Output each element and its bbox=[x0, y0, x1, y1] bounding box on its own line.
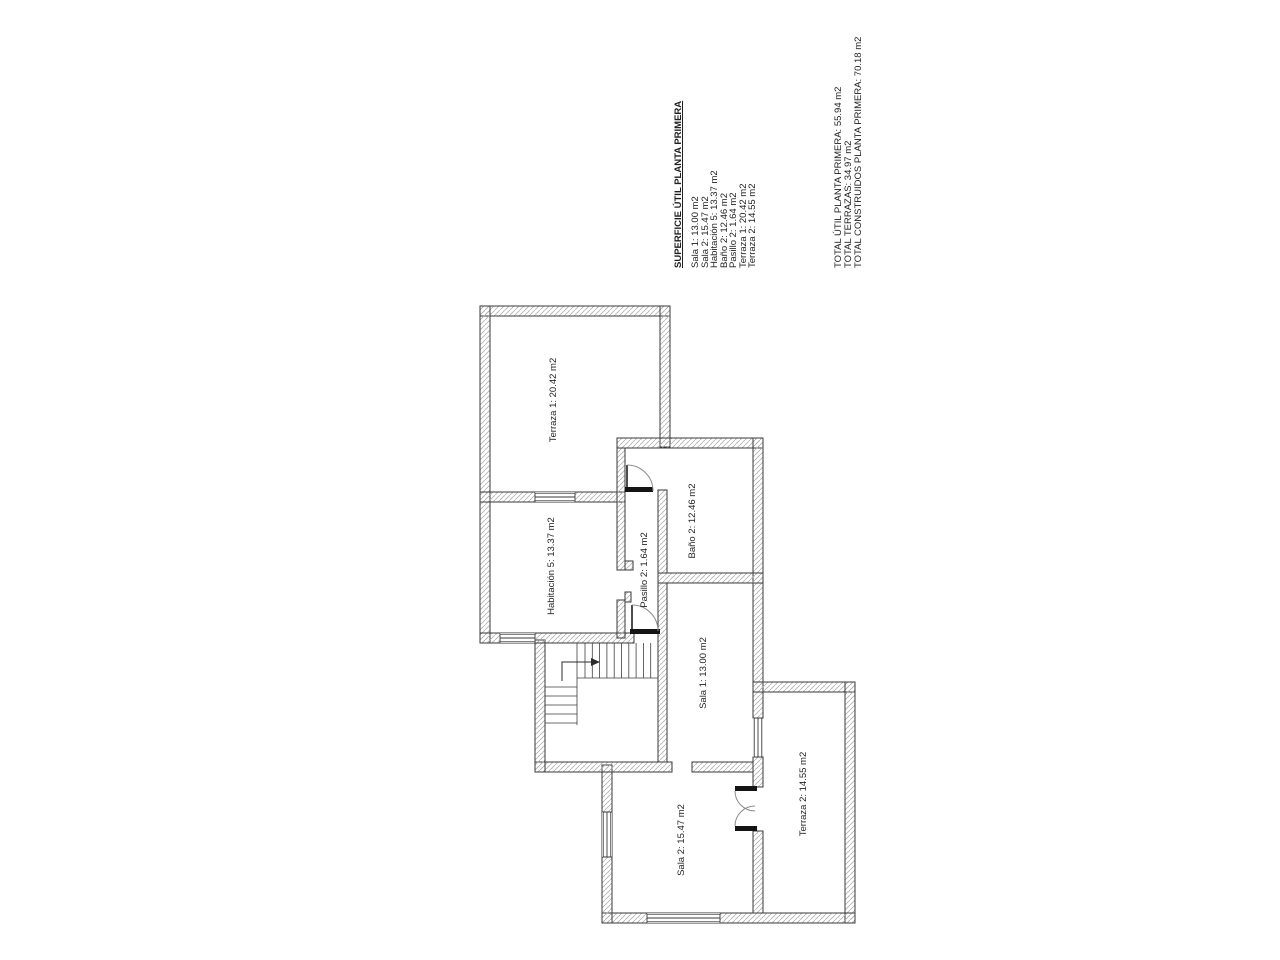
floor-plan-drawing: Terraza 1: 20.42 m2 Habitación 5: 13.37 … bbox=[0, 0, 1280, 960]
summary-title: SUPERFICIE ÚTIL PLANTA PRIMERA bbox=[674, 58, 684, 268]
summary-total-construidos: TOTAL CONSTRUIDOS PLANTA PRIMERA: 70.18 … bbox=[854, 58, 864, 268]
window-terraza1-bottom bbox=[535, 492, 575, 502]
wall-stairs-bottom bbox=[535, 762, 672, 772]
window-sala2-left bbox=[602, 812, 612, 857]
scanned-floorplan-page: Terraza 1: 20.42 m2 Habitación 5: 13.37 … bbox=[0, 0, 1280, 960]
window-sala1-right bbox=[753, 718, 763, 757]
room-label-bano2: Baño 2: 12.46 m2 bbox=[687, 484, 698, 559]
wall-door-jamb-b bbox=[625, 592, 631, 602]
wall-right-terraza1 bbox=[660, 306, 670, 447]
door-leaf-terraza2-top bbox=[735, 786, 757, 791]
stair-winders bbox=[545, 687, 577, 723]
room-label-sala1: Sala 1: 13.00 m2 bbox=[698, 637, 709, 709]
stair-run-edge bbox=[577, 643, 658, 725]
staircase bbox=[545, 643, 658, 725]
wall-right-terraza2 bbox=[845, 682, 855, 923]
wall-sala1-left bbox=[658, 583, 667, 762]
window-sala2-bottom bbox=[647, 913, 720, 923]
room-label-terraza1: Terraza 1: 20.42 m2 bbox=[548, 358, 559, 443]
wall-top-terraza1 bbox=[480, 306, 670, 316]
summary-totals: TOTAL ÚTIL PLANTA PRIMERA: 55.94 m2 TOTA… bbox=[834, 58, 864, 268]
wall-right-main-c bbox=[753, 831, 763, 913]
area-summary-block: SUPERFICIE ÚTIL PLANTA PRIMERA Sala 1: 1… bbox=[674, 58, 864, 268]
door-arc-terraza2-top bbox=[735, 791, 755, 811]
wall-bano-bottom bbox=[658, 573, 763, 583]
room-label-habitacion5: Habitación 5: 13.37 m2 bbox=[546, 517, 557, 615]
door-threshold-vestibule bbox=[625, 487, 653, 492]
wall-pasillo-right bbox=[658, 490, 667, 573]
window-habitacion-bottom bbox=[500, 633, 535, 643]
wall-left-stairs bbox=[535, 640, 545, 772]
wall-top-bano bbox=[617, 438, 763, 448]
stair-direction-arrowhead bbox=[591, 658, 600, 666]
room-labels: Terraza 1: 20.42 m2 Habitación 5: 13.37 … bbox=[546, 358, 809, 876]
room-label-sala2: Sala 2: 15.47 m2 bbox=[676, 804, 687, 876]
room-label-terraza2: Terraza 2: 14.55 m2 bbox=[798, 752, 809, 837]
wall-pasillo-left-a bbox=[617, 448, 625, 570]
summary-total-util: TOTAL ÚTIL PLANTA PRIMERA: 55.94 m2 bbox=[834, 58, 844, 268]
wall-pasillo-left-b bbox=[617, 600, 625, 638]
door-arc-terraza2-bottom bbox=[735, 806, 755, 826]
room-label-pasillo2: Pasillo 2: 1.64 m2 bbox=[639, 532, 650, 608]
door-leaf-terraza2-bottom bbox=[735, 826, 757, 831]
wall-sala1-bottom bbox=[692, 762, 753, 772]
wall-door-jamb-a bbox=[625, 561, 633, 570]
wall-top-terraza2 bbox=[753, 682, 855, 692]
door-threshold-pasillo bbox=[630, 629, 660, 634]
summary-total-terrazas: TOTAL TERRAZAS: 34.97 m2 bbox=[844, 58, 854, 268]
wall-left-upper bbox=[480, 306, 490, 643]
summary-line-terraza2: Terraza 2: 14.55 m2 bbox=[748, 58, 758, 268]
wall-bottom bbox=[602, 913, 855, 923]
door-arc-pasillo bbox=[632, 605, 658, 631]
wall-right-main-b bbox=[753, 757, 763, 787]
